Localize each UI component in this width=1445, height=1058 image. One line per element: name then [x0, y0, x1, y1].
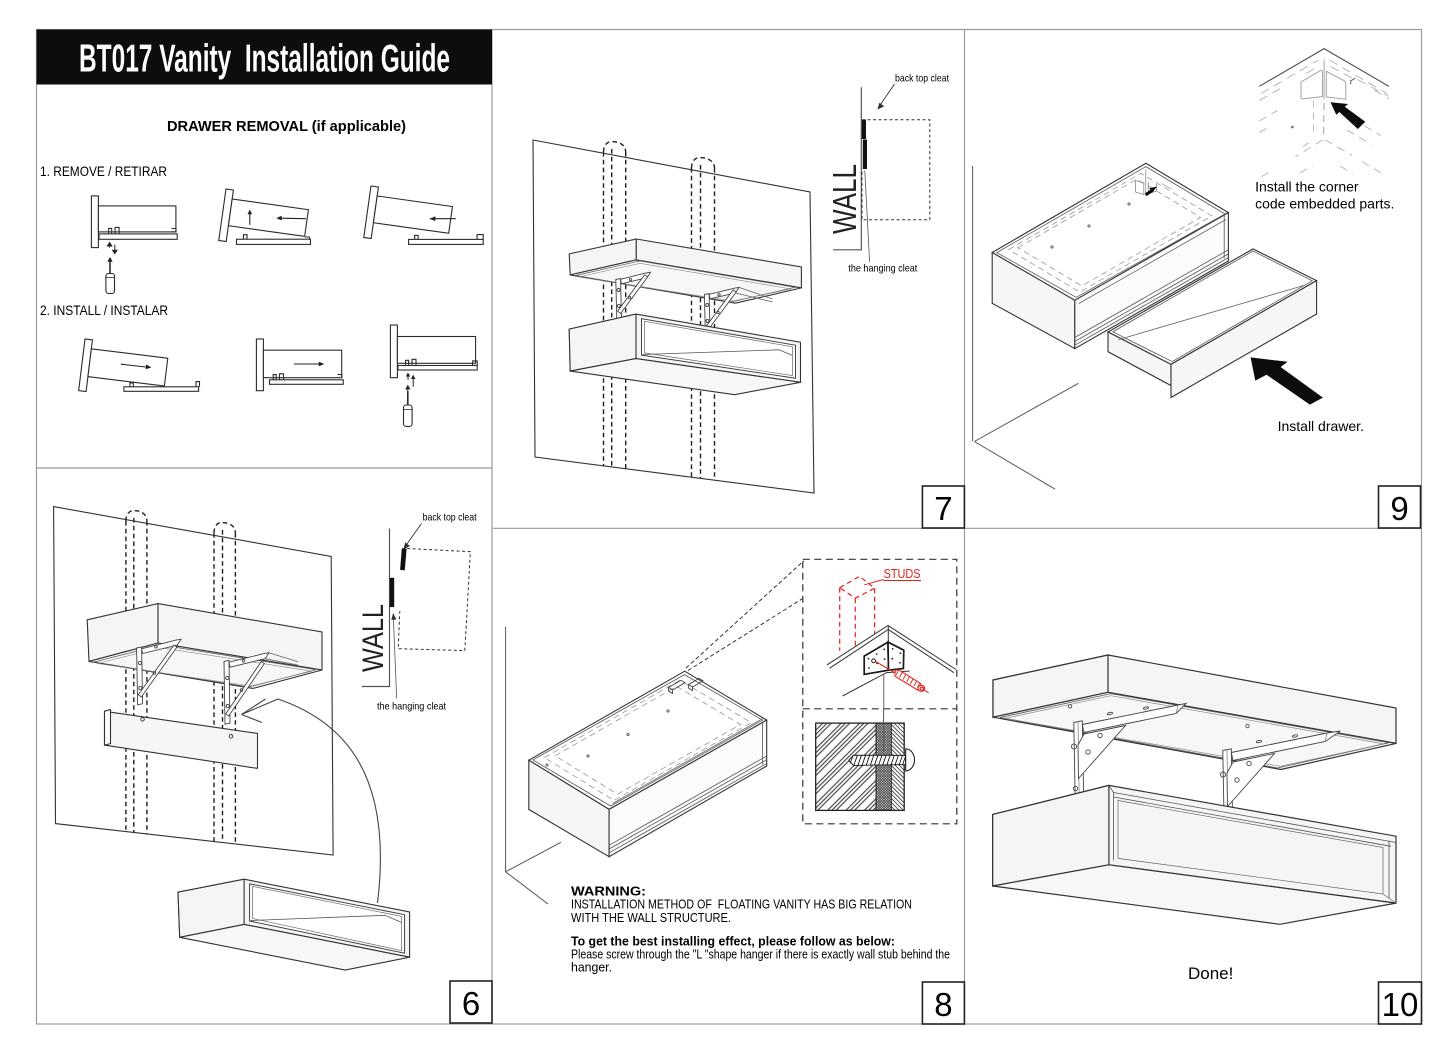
svg-text:6: 6 — [462, 985, 480, 1022]
svg-text:9: 9 — [1390, 490, 1408, 527]
svg-text:WALL: WALL — [826, 164, 863, 234]
svg-text:1. REMOVE / RETIRAR: 1. REMOVE / RETIRAR — [40, 163, 167, 179]
svg-text:INSTALLATION METHOD OF FLOATI: INSTALLATION METHOD OF FLOATING VANITY H… — [571, 898, 912, 912]
svg-text:To get the best installing eff: To get the best installing effect, pleas… — [571, 934, 895, 948]
svg-text:hanger.: hanger. — [571, 960, 612, 974]
svg-text:DRAWER REMOVAL (if applicable): DRAWER REMOVAL (if applicable) — [167, 118, 406, 135]
svg-text:8: 8 — [934, 986, 952, 1023]
svg-text:back top cleat: back top cleat — [423, 512, 477, 524]
svg-text:code embedded parts.: code embedded parts. — [1255, 196, 1394, 212]
svg-text:Install the corner: Install the corner — [1255, 179, 1359, 195]
svg-text:Install drawer.: Install drawer. — [1278, 418, 1364, 434]
svg-text:10: 10 — [1382, 986, 1419, 1023]
svg-text:BT017 Vanity Installation Gui: BT017 Vanity Installation Guide — [79, 38, 450, 81]
svg-text:7: 7 — [934, 490, 952, 527]
svg-text:back top cleat: back top cleat — [895, 73, 949, 85]
svg-text:STUDS: STUDS — [884, 567, 921, 581]
svg-text:WARNING:: WARNING: — [571, 883, 646, 898]
svg-text:the hanging cleat: the hanging cleat — [848, 263, 917, 275]
svg-text:WALL: WALL — [357, 604, 390, 672]
svg-text:the hanging cleat: the hanging cleat — [377, 701, 446, 713]
svg-text:Done!: Done! — [1188, 964, 1233, 983]
svg-text:Please screw through the "L "s: Please screw through the "L "shape hange… — [571, 947, 950, 961]
svg-text:2. INSTALL / INSTALAR: 2. INSTALL / INSTALAR — [40, 302, 168, 318]
svg-text:WITH THE WALL STRUCTURE.: WITH THE WALL STRUCTURE. — [571, 911, 731, 925]
